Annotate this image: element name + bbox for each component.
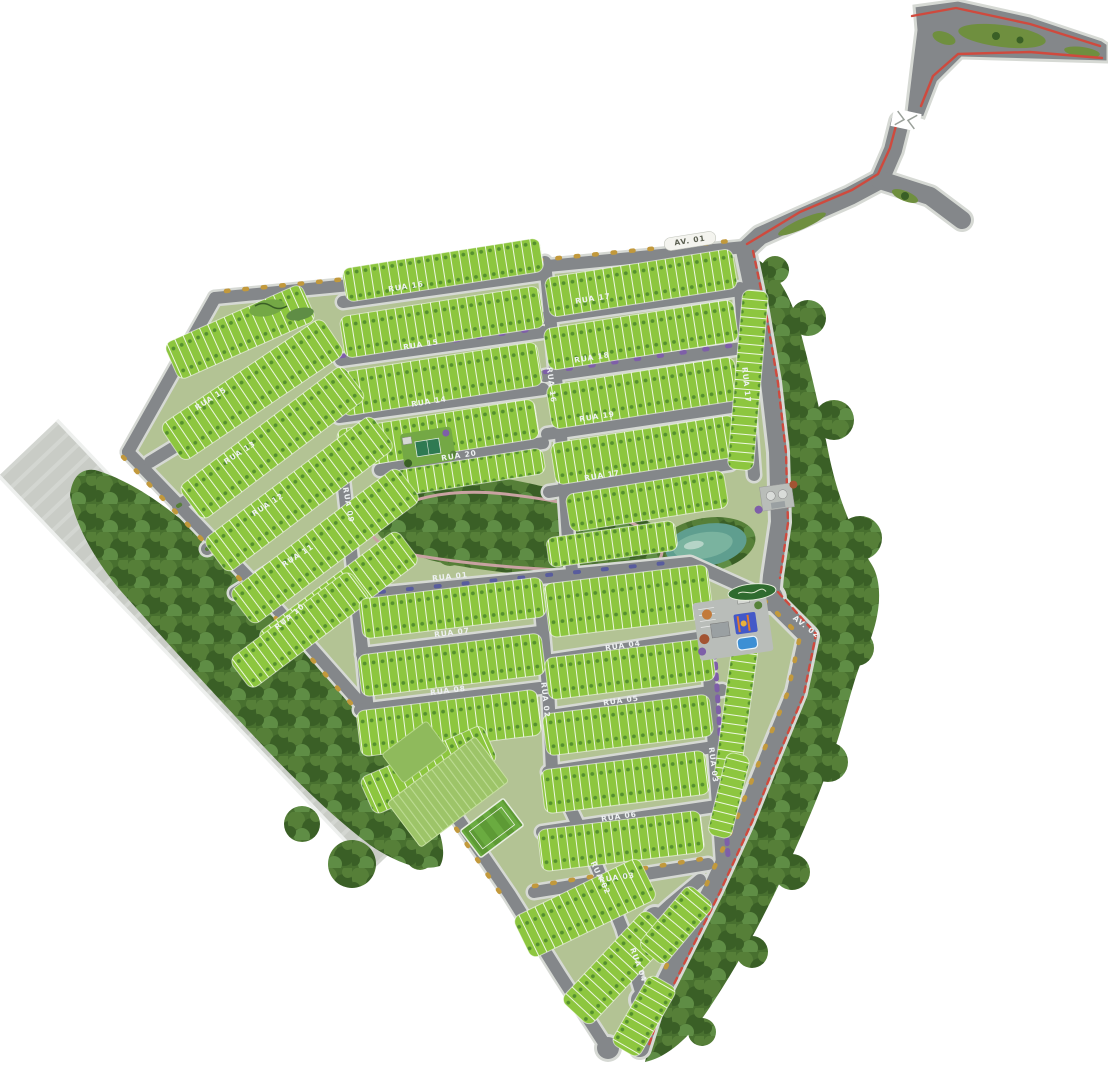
clubhouse-area: [691, 592, 773, 661]
site-plan-page: RUA 16RUA 15RUA 14RUA 20RUA 17RUA 18RUA …: [0, 0, 1108, 1080]
park-kiosk: [402, 437, 412, 445]
swimming-pool: [737, 636, 758, 651]
clubhouse-building: [710, 622, 730, 638]
site-plan-map: RUA 16RUA 15RUA 14RUA 20RUA 17RUA 18RUA …: [0, 0, 1108, 1080]
